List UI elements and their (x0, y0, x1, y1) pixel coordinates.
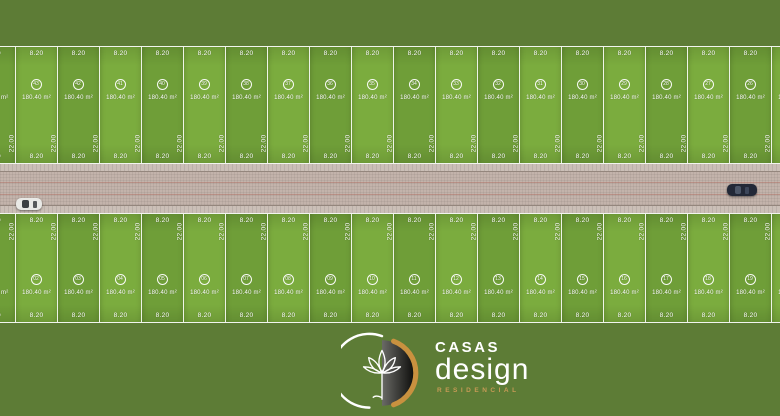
lot-area: 180.40 m² (730, 290, 771, 296)
lot-number: 19 (745, 274, 756, 285)
lot-number: 13 (493, 274, 504, 285)
lot-area: 180.40 m² (646, 290, 687, 296)
lot-area: 180.40 m² (184, 290, 225, 296)
lot-area: 180.40 m² (352, 290, 393, 296)
lot-area: 180.40 m² (268, 95, 309, 101)
lot-19: 8.2019180.40 m²22.008.20 (729, 214, 771, 322)
lot-number: 02 (31, 274, 42, 285)
lot-front-dimension: 8.20 (520, 312, 561, 319)
lot-front-dimension: 8.20 (352, 50, 393, 57)
lot-front-dimension: 8.20 (436, 153, 477, 160)
brand-subtitle: RESIDENCIAL (437, 387, 529, 394)
lot-front-dimension: 8.20 (772, 217, 780, 224)
lot-32: 8.2032180.40 m²22.008.20 (477, 47, 519, 163)
lot-front-dimension: 8.20 (184, 153, 225, 160)
lot-number: 26 (745, 79, 756, 90)
lot-front-dimension: 8.20 (688, 153, 729, 160)
lot-number: 12 (451, 274, 462, 285)
lot-front-dimension: 8.20 (310, 312, 351, 319)
lot-area: 180.40 m² (688, 95, 729, 101)
lot-front-dimension: 8.20 (478, 50, 519, 57)
lot-front-dimension: 8.20 (226, 312, 267, 319)
lot-front-dimension: 8.20 (604, 153, 645, 160)
car-windshield (735, 186, 741, 194)
sidewalk-top (0, 164, 780, 171)
lot-area: 180.40 m² (58, 95, 99, 101)
lot-row-bottom: 8.2001180.40 m²22.008.208.2002180.40 m²2… (0, 213, 780, 323)
lot-front-dimension: 8.20 (0, 50, 15, 57)
lot-area: 180.40 m² (520, 95, 561, 101)
lot-area: 180.40 m² (0, 290, 15, 296)
lot-number: 33 (451, 79, 462, 90)
lot-08: 8.2008180.40 m²22.008.20 (267, 214, 309, 322)
lot-36: 8.2036180.40 m²22.008.20 (309, 47, 351, 163)
lot-area: 180.40 m² (352, 95, 393, 101)
lot-front-dimension: 8.20 (352, 153, 393, 160)
lot-area: 180.40 m² (688, 290, 729, 296)
lot-area: 180.40 m² (0, 95, 15, 101)
lot-front-dimension: 8.20 (100, 153, 141, 160)
lot-10: 8.2010180.40 m²22.008.20 (351, 214, 393, 322)
lot-front-dimension: 8.20 (772, 153, 780, 160)
lot-number: 31 (535, 79, 546, 90)
lot-43: 8.2043180.40 m²22.008.20 (15, 47, 57, 163)
lot-front-dimension: 8.20 (100, 312, 141, 319)
lot-front-dimension: 8.20 (604, 312, 645, 319)
dark-car-icon (727, 184, 757, 196)
lot-07: 8.2007180.40 m²22.008.20 (225, 214, 267, 322)
lot-front-dimension: 8.20 (478, 153, 519, 160)
lot-35: 8.2035180.40 m²22.008.20 (351, 47, 393, 163)
lot-front-dimension: 8.20 (436, 50, 477, 57)
lot-area: 180.40 m² (562, 290, 603, 296)
lot-number: 38 (241, 79, 252, 90)
lot-01: 8.2001180.40 m²22.008.20 (0, 214, 15, 322)
lot-area: 180.40 m² (436, 95, 477, 101)
lot-14: 8.2014180.40 m²22.008.20 (519, 214, 561, 322)
lot-03: 8.2003180.40 m²22.008.20 (57, 214, 99, 322)
lot-front-dimension: 8.20 (520, 50, 561, 57)
lot-number: 39 (199, 79, 210, 90)
lot-front-dimension: 8.20 (772, 312, 780, 319)
lot-number: 18 (703, 274, 714, 285)
lot-number: 17 (661, 274, 672, 285)
lot-front-dimension: 8.20 (520, 153, 561, 160)
lot-number: 37 (283, 79, 294, 90)
lot-44: 8.2044180.40 m²22.008.20 (0, 47, 15, 163)
lot-41: 8.2041180.40 m²22.008.20 (99, 47, 141, 163)
lot-number: 32 (493, 79, 504, 90)
lot-number: 10 (367, 274, 378, 285)
lot-area: 180.40 m² (436, 290, 477, 296)
lot-front-dimension: 8.20 (730, 153, 771, 160)
sidewalk-bottom (0, 206, 780, 213)
lot-09: 8.2009180.40 m²22.008.20 (309, 214, 351, 322)
lot-front-dimension: 8.20 (268, 312, 309, 319)
lot-front-dimension: 8.20 (646, 50, 687, 57)
lot-number: 03 (73, 274, 84, 285)
lot-29: 8.2029180.40 m²22.008.20 (603, 47, 645, 163)
lot-37: 8.2037180.40 m²22.008.20 (267, 47, 309, 163)
lot-number: 36 (325, 79, 336, 90)
lot-31: 8.2031180.40 m²22.008.20 (519, 47, 561, 163)
lot-front-dimension: 8.20 (646, 153, 687, 160)
lot-front-dimension: 8.20 (478, 312, 519, 319)
lot-front-dimension: 8.20 (0, 312, 15, 319)
lot-front-dimension: 8.20 (58, 312, 99, 319)
lot-front-dimension: 8.20 (352, 312, 393, 319)
lot-number: 40 (157, 79, 168, 90)
lot-front-dimension: 8.20 (730, 312, 771, 319)
lot-area: 180.40 m² (100, 95, 141, 101)
lot-13: 8.2013180.40 m²22.008.20 (477, 214, 519, 322)
lot-front-dimension: 8.20 (268, 153, 309, 160)
lot-number: 41 (115, 79, 126, 90)
lot-area: 180.40 m² (268, 290, 309, 296)
lot-front-dimension: 8.20 (310, 153, 351, 160)
lot-front-dimension: 8.20 (16, 50, 57, 57)
paver-course-line (0, 182, 780, 183)
lot-number: 08 (283, 274, 294, 285)
lot-area: 180.40 m² (562, 95, 603, 101)
lot-area: 180.40 m² (772, 290, 780, 296)
lot-front-dimension: 8.20 (226, 50, 267, 57)
lot-area: 180.40 m² (100, 290, 141, 296)
lot-front-dimension: 8.20 (394, 312, 435, 319)
lot-number: 28 (661, 79, 672, 90)
lot-05: 8.2005180.40 m²22.008.20 (141, 214, 183, 322)
lot-front-dimension: 8.20 (142, 50, 183, 57)
lot-front-dimension: 8.20 (268, 50, 309, 57)
lot-area: 180.40 m² (16, 95, 57, 101)
lot-number: 34 (409, 79, 420, 90)
lot-area: 180.40 m² (394, 290, 435, 296)
lot-42: 8.2042180.40 m²22.008.20 (57, 47, 99, 163)
brand-name-design: design (435, 356, 529, 383)
lot-front-dimension: 8.20 (394, 50, 435, 57)
lot-row-top: 8.2044180.40 m²22.008.208.2043180.40 m²2… (0, 46, 780, 164)
car-rear-window (745, 187, 749, 194)
lot-26: 8.2026180.40 m²22.008.20 (729, 47, 771, 163)
brand-logo: CASAS design RESIDENCIAL (341, 332, 529, 414)
lot-number: 11 (409, 274, 420, 285)
lot-number: 42 (73, 79, 84, 90)
lot-number: 05 (157, 274, 168, 285)
lot-27: 8.2027180.40 m²22.008.20 (687, 47, 729, 163)
lot-front-dimension: 8.20 (562, 312, 603, 319)
lot-15: 8.2015180.40 m²22.008.20 (561, 214, 603, 322)
lot-33: 8.2033180.40 m²22.008.20 (435, 47, 477, 163)
lot-area: 180.40 m² (310, 290, 351, 296)
site-plan: 8.2044180.40 m²22.008.208.2043180.40 m²2… (0, 0, 780, 416)
lot-number: 15 (577, 274, 588, 285)
lot-20: 8.2020180.40 m²22.008.20 (771, 214, 780, 322)
lot-area: 180.40 m² (478, 95, 519, 101)
lot-area: 180.40 m² (58, 290, 99, 296)
lot-area: 180.40 m² (604, 290, 645, 296)
roadway (0, 172, 780, 205)
lot-06: 8.2006180.40 m²22.008.20 (183, 214, 225, 322)
lot-front-dimension: 8.20 (436, 312, 477, 319)
lot-number: 09 (325, 274, 336, 285)
road (0, 164, 780, 213)
lot-front-dimension: 8.20 (0, 153, 15, 160)
lot-front-dimension: 8.20 (730, 50, 771, 57)
lot-area: 180.40 m² (226, 290, 267, 296)
lot-number: 27 (703, 79, 714, 90)
lot-front-dimension: 8.20 (646, 312, 687, 319)
lot-25: 8.2025180.40 m²22.008.20 (771, 47, 780, 163)
lot-area: 180.40 m² (226, 95, 267, 101)
lot-number: 06 (199, 274, 210, 285)
lot-front-dimension: 8.20 (16, 153, 57, 160)
lot-front-dimension: 8.20 (310, 50, 351, 57)
lot-40: 8.2040180.40 m²22.008.20 (141, 47, 183, 163)
lot-number: 04 (115, 274, 126, 285)
lot-area: 180.40 m² (730, 95, 771, 101)
lot-28: 8.2028180.40 m²22.008.20 (645, 47, 687, 163)
lot-number: 43 (31, 79, 42, 90)
lot-area: 180.40 m² (646, 95, 687, 101)
lot-area: 180.40 m² (394, 95, 435, 101)
lot-front-dimension: 8.20 (688, 312, 729, 319)
lot-11: 8.2011180.40 m²22.008.20 (393, 214, 435, 322)
lot-front-dimension: 8.20 (16, 312, 57, 319)
lot-number: 07 (241, 274, 252, 285)
lot-area: 180.40 m² (604, 95, 645, 101)
lot-area: 180.40 m² (142, 290, 183, 296)
lot-front-dimension: 8.20 (604, 50, 645, 57)
lot-38: 8.2038180.40 m²22.008.20 (225, 47, 267, 163)
brand-text: CASAS design RESIDENCIAL (435, 332, 529, 394)
lot-30: 8.2030180.40 m²22.008.20 (561, 47, 603, 163)
lot-04: 8.2004180.40 m²22.008.20 (99, 214, 141, 322)
lot-number: 14 (535, 274, 546, 285)
car-windshield (22, 200, 29, 208)
lot-front-dimension: 8.20 (100, 50, 141, 57)
lot-area: 180.40 m² (478, 290, 519, 296)
lot-front-dimension: 8.20 (58, 153, 99, 160)
lot-area: 180.40 m² (184, 95, 225, 101)
lot-front-dimension: 8.20 (184, 312, 225, 319)
lot-front-dimension: 8.20 (562, 153, 603, 160)
lot-front-dimension: 8.20 (142, 312, 183, 319)
lot-number: 29 (619, 79, 630, 90)
lot-front-dimension: 8.20 (688, 50, 729, 57)
white-car-icon (16, 198, 42, 210)
lot-front-dimension: 8.20 (772, 50, 780, 57)
lot-number: 16 (619, 274, 630, 285)
lot-front-dimension: 8.20 (184, 50, 225, 57)
lot-front-dimension: 8.20 (142, 153, 183, 160)
lot-number: 35 (367, 79, 378, 90)
lotus-flower-icon (341, 332, 423, 414)
paver-course-line (0, 194, 780, 195)
lot-front-dimension: 8.20 (226, 153, 267, 160)
lot-39: 8.2039180.40 m²22.008.20 (183, 47, 225, 163)
lot-area: 180.40 m² (772, 95, 780, 101)
lot-02: 8.2002180.40 m²22.008.20 (15, 214, 57, 322)
lot-16: 8.2016180.40 m²22.008.20 (603, 214, 645, 322)
lot-12: 8.2012180.40 m²22.008.20 (435, 214, 477, 322)
lot-17: 8.2017180.40 m²22.008.20 (645, 214, 687, 322)
lot-34: 8.2034180.40 m²22.008.20 (393, 47, 435, 163)
lot-front-dimension: 8.20 (394, 153, 435, 160)
lot-18: 8.2018180.40 m²22.008.20 (687, 214, 729, 322)
lot-area: 180.40 m² (142, 95, 183, 101)
lot-number: 30 (577, 79, 588, 90)
lot-area: 180.40 m² (520, 290, 561, 296)
lot-area: 180.40 m² (310, 95, 351, 101)
car-rear-window (33, 201, 37, 208)
lot-front-dimension: 8.20 (58, 50, 99, 57)
lot-front-dimension: 8.20 (562, 50, 603, 57)
lot-area: 180.40 m² (16, 290, 57, 296)
